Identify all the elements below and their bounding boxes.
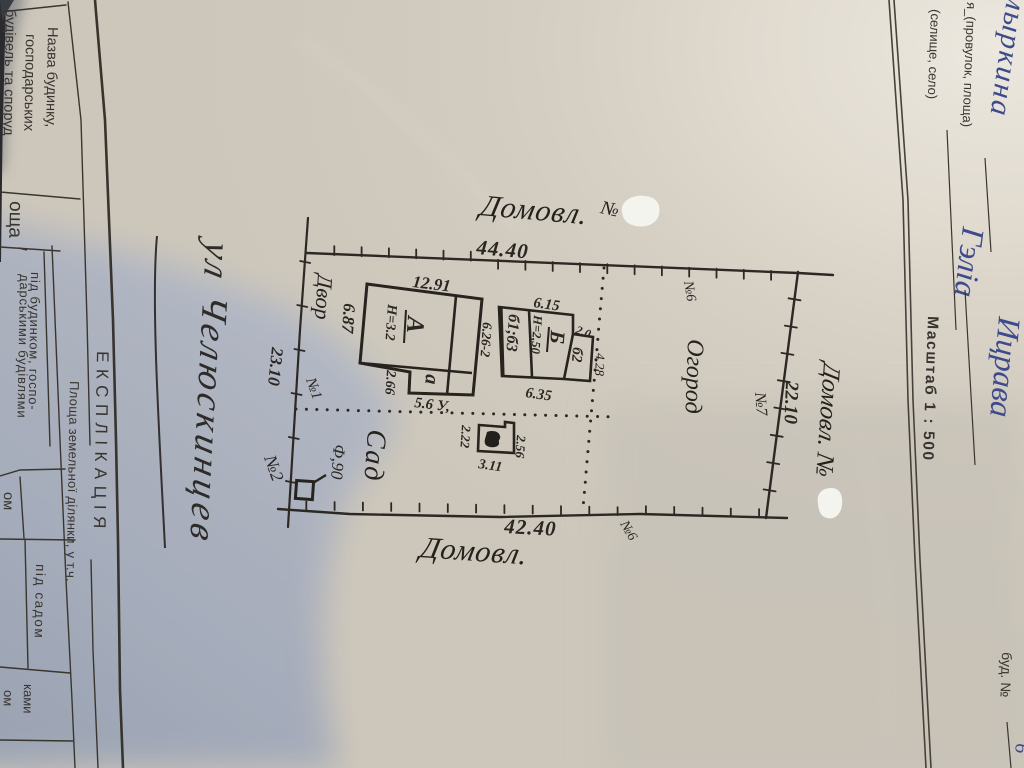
svg-text:4.28: 4.28: [592, 353, 608, 377]
svg-text:2.66: 2.66: [381, 369, 398, 395]
svg-text:ом: ом: [0, 492, 16, 510]
svg-text:буд. №: буд. №: [997, 652, 1015, 698]
svg-text:оща: оща: [4, 201, 26, 239]
svg-text:Н=2,50: Н=2,50: [528, 314, 545, 355]
svg-text:6: 6: [1010, 743, 1024, 755]
svg-text:ЕКСПЛІКАЦІЯ: ЕКСПЛІКАЦІЯ: [90, 351, 112, 535]
svg-text:Сад: Сад: [357, 429, 392, 484]
svg-text:22.10: 22.10: [779, 380, 802, 425]
svg-text:Огород: Огород: [679, 339, 708, 414]
svg-text:Н=3.2: Н=3.2: [381, 303, 399, 341]
svg-text:44.40: 44.40: [475, 235, 530, 264]
svg-text:2.22: 2.22: [457, 424, 474, 449]
svg-text:ками: ками: [20, 684, 36, 714]
svg-text:Двор: Двор: [310, 272, 338, 321]
svg-text:господарських: господарських: [20, 34, 38, 132]
svg-text:(селище, село): (селище, село): [925, 9, 943, 100]
svg-text:№7: №7: [751, 391, 770, 417]
svg-text:Ф,90: Ф,90: [327, 444, 349, 481]
svg-text:будівель та споруд: будівель та споруд: [0, 9, 18, 136]
svg-text:під садом: під садом: [32, 564, 48, 640]
svg-text:ом: ом: [1, 690, 16, 706]
svg-text:2.56: 2.56: [512, 434, 529, 459]
svg-text:а: а: [420, 374, 443, 386]
svg-text:Назва будинку,: Назва будинку,: [42, 27, 60, 128]
svg-text:б1;б3: б1;б3: [502, 314, 522, 352]
svg-text:6.26-2: 6.26-2: [478, 322, 495, 358]
svg-text:дарськими будівлями: дарськими будівлями: [14, 274, 32, 419]
svg-text:6.87: 6.87: [338, 303, 359, 335]
svg-text:б2: б2: [568, 347, 585, 364]
